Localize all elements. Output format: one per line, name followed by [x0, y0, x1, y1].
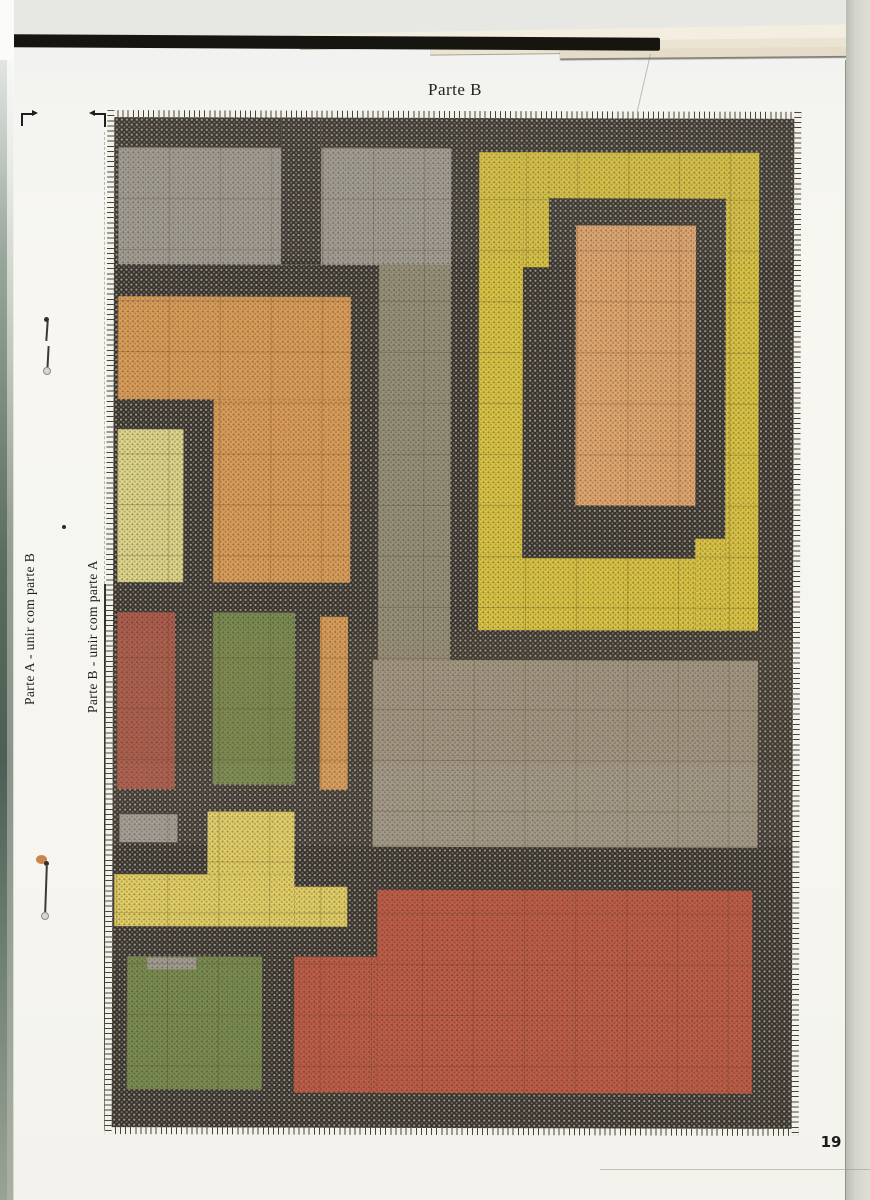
mark-line [104, 113, 106, 127]
side-label-parte-a: Parte A - unir com parte B [22, 527, 38, 705]
pattern-block-orange-block-bottom [213, 399, 350, 582]
page-title: Parte B [355, 80, 555, 100]
mark-line [21, 113, 32, 115]
page-right-edge-line [845, 60, 846, 1200]
side-label-parte-b: Parte B - unir com parte A [85, 533, 101, 713]
scan-corner [0, 0, 14, 60]
pattern-block-yellow-t-vertical [207, 811, 294, 874]
pattern-block-gray-middle [372, 660, 757, 848]
page-number: 19 [814, 1133, 848, 1151]
pattern-content [112, 117, 795, 1129]
staple-bottom [36, 853, 52, 925]
pattern-block-gray-small-bar [119, 814, 177, 842]
pattern-block-green-big-block [127, 956, 262, 1089]
pattern-block-yellow-patch-top-left [523, 152, 549, 267]
page-right-edge [846, 0, 870, 1200]
staple-wire [44, 866, 48, 912]
register-mark-left [21, 113, 37, 127]
scanned-magazine-page: { "page": { "title": "Parte B", "page_nu… [0, 0, 870, 1200]
staple-loop [43, 367, 51, 375]
pattern-chart [105, 110, 802, 1136]
pattern-block-dark-bar-top [281, 118, 321, 265]
pattern-block-yellow-t-horizontal [114, 874, 294, 926]
pattern-block-pale-yellow-block [117, 429, 183, 582]
fold-line-faint [104, 132, 105, 584]
pattern-block-yellow-t-extension [294, 887, 347, 927]
arrow-right-icon [32, 110, 38, 116]
pattern-block-yellow-patch-bottom-right [695, 539, 725, 631]
pattern-block-red-big-block [377, 890, 753, 1094]
staple-wire [45, 321, 48, 341]
pattern-block-orange-inner-block [575, 225, 696, 505]
pattern-block-green-small-block [213, 612, 295, 784]
pattern-block-gray-notch [147, 957, 196, 969]
ink-dot [62, 525, 66, 529]
pattern-block-gray-column [378, 265, 451, 660]
pattern-block-red-big-extension [294, 957, 377, 1093]
pattern-block-red-small-block [117, 612, 175, 789]
register-mark-right [89, 113, 106, 127]
page-bottom-shadow [600, 1169, 870, 1170]
pattern-block-orange-block-top [118, 296, 351, 400]
staple-loop [41, 912, 49, 920]
spine-highlight [7, 60, 14, 1200]
mark-line [21, 113, 23, 126]
staple-top [40, 315, 54, 375]
pattern-block-orange-bar [320, 617, 348, 790]
